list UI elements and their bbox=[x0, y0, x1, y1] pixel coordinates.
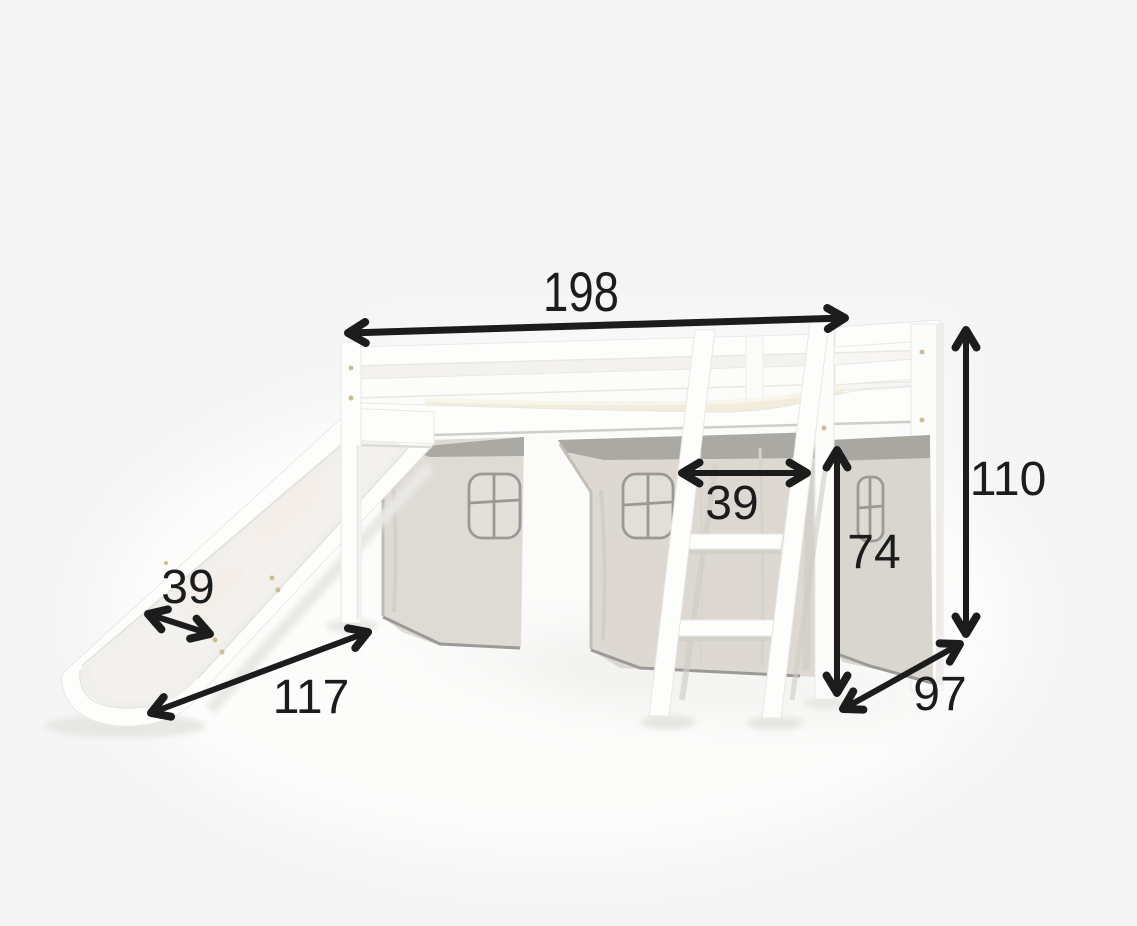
svg-text:74: 74 bbox=[847, 526, 900, 579]
svg-text:110: 110 bbox=[970, 453, 1047, 506]
svg-text:117: 117 bbox=[273, 671, 350, 724]
svg-text:97: 97 bbox=[913, 668, 966, 721]
svg-text:39: 39 bbox=[161, 561, 214, 614]
svg-text:198: 198 bbox=[543, 260, 619, 323]
svg-text:39: 39 bbox=[705, 477, 758, 530]
